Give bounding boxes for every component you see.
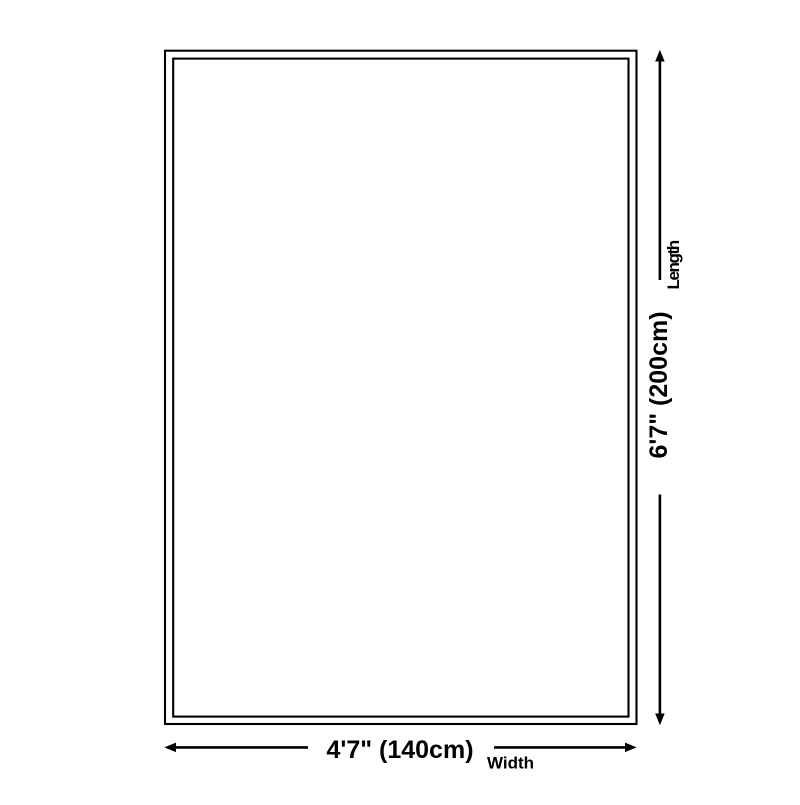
svg-text:Length: Length [664,240,683,289]
svg-text:6'7" (200cm): 6'7" (200cm) [645,311,673,458]
svg-text:4'7" (140cm): 4'7" (140cm) [326,736,473,764]
svg-text:Width: Width [487,753,534,772]
